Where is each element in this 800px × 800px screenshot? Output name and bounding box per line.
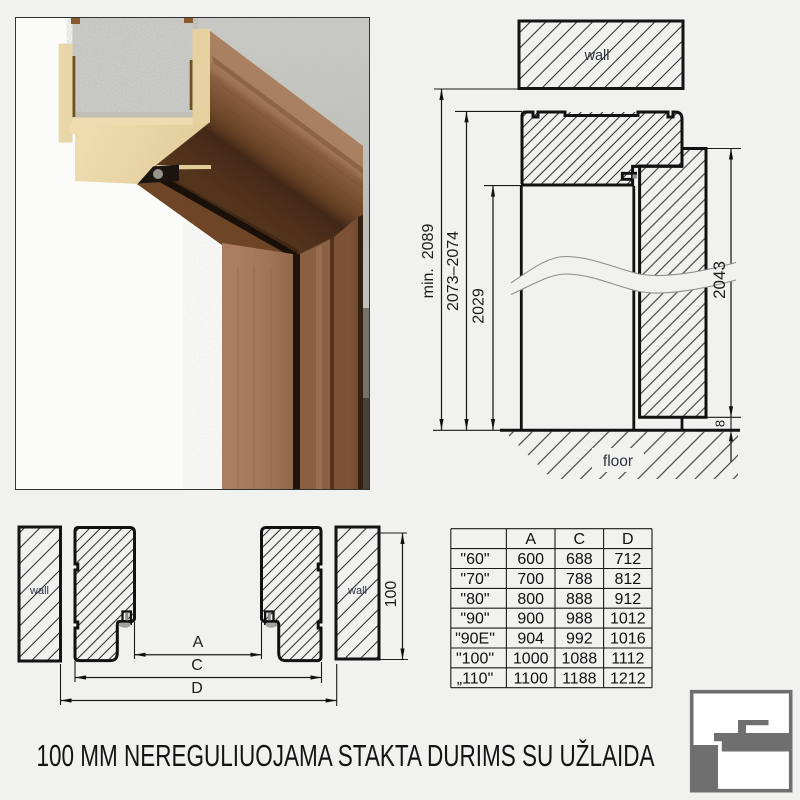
svg-text:1000: 1000 <box>513 650 549 667</box>
svg-text:1016: 1016 <box>610 631 646 648</box>
svg-text:1188: 1188 <box>562 670 597 687</box>
svg-text:D: D <box>191 680 203 697</box>
svg-text:700: 700 <box>517 571 544 588</box>
svg-text:100: 100 <box>383 581 400 608</box>
svg-text:C: C <box>574 531 586 548</box>
svg-text:min. 2089: min. 2089 <box>420 224 437 299</box>
svg-text:wall: wall <box>29 585 49 597</box>
svg-text:"90": "90" <box>460 611 489 628</box>
svg-text:"70": "70" <box>460 571 489 588</box>
svg-text:A: A <box>193 634 204 651</box>
svg-text:988: 988 <box>566 611 593 628</box>
svg-text:904: 904 <box>517 631 544 648</box>
svg-text:A: A <box>525 531 536 548</box>
svg-text:"90E": "90E" <box>455 631 495 648</box>
svg-text:wall: wall <box>584 48 610 64</box>
svg-text:2073–2074: 2073–2074 <box>445 231 462 311</box>
svg-text:wall: wall <box>347 585 367 597</box>
svg-text:2043: 2043 <box>710 261 729 299</box>
svg-text:712: 712 <box>614 551 641 568</box>
svg-text:812: 812 <box>614 571 641 588</box>
svg-text:„110": „110" <box>457 670 494 687</box>
svg-text:788: 788 <box>566 571 593 588</box>
svg-text:1100: 1100 <box>513 670 548 687</box>
svg-text:900: 900 <box>517 611 544 628</box>
svg-text:100 MM NEREGULIUOJAMA STAKTA D: 100 MM NEREGULIUOJAMA STAKTA DURIMS SU U… <box>37 738 655 773</box>
svg-text:800: 800 <box>517 591 544 608</box>
svg-text:2029: 2029 <box>471 288 488 324</box>
svg-text:688: 688 <box>566 551 593 568</box>
svg-text:8: 8 <box>713 420 728 427</box>
svg-text:floor: floor <box>603 453 633 470</box>
svg-text:D: D <box>622 531 634 548</box>
svg-text:"80": "80" <box>460 591 489 608</box>
svg-text:992: 992 <box>566 631 593 648</box>
svg-text:1012: 1012 <box>610 611 646 628</box>
svg-text:"100": "100" <box>456 650 494 667</box>
svg-text:888: 888 <box>566 591 593 608</box>
svg-text:912: 912 <box>614 591 641 608</box>
svg-text:C: C <box>191 657 203 674</box>
svg-text:1112: 1112 <box>611 650 644 667</box>
svg-text:1212: 1212 <box>610 670 646 687</box>
svg-text:1088: 1088 <box>562 650 598 667</box>
svg-text:600: 600 <box>517 551 544 568</box>
svg-text:"60": "60" <box>460 551 489 568</box>
